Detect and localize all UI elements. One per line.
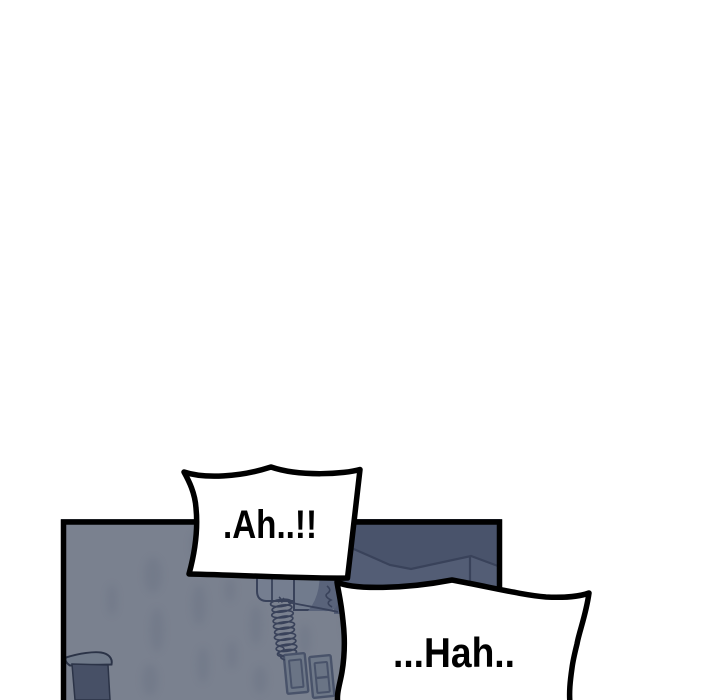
svg-text:.Ah..!!: .Ah..!! (223, 503, 317, 547)
svg-text:...Hah..: ...Hah.. (393, 629, 515, 676)
